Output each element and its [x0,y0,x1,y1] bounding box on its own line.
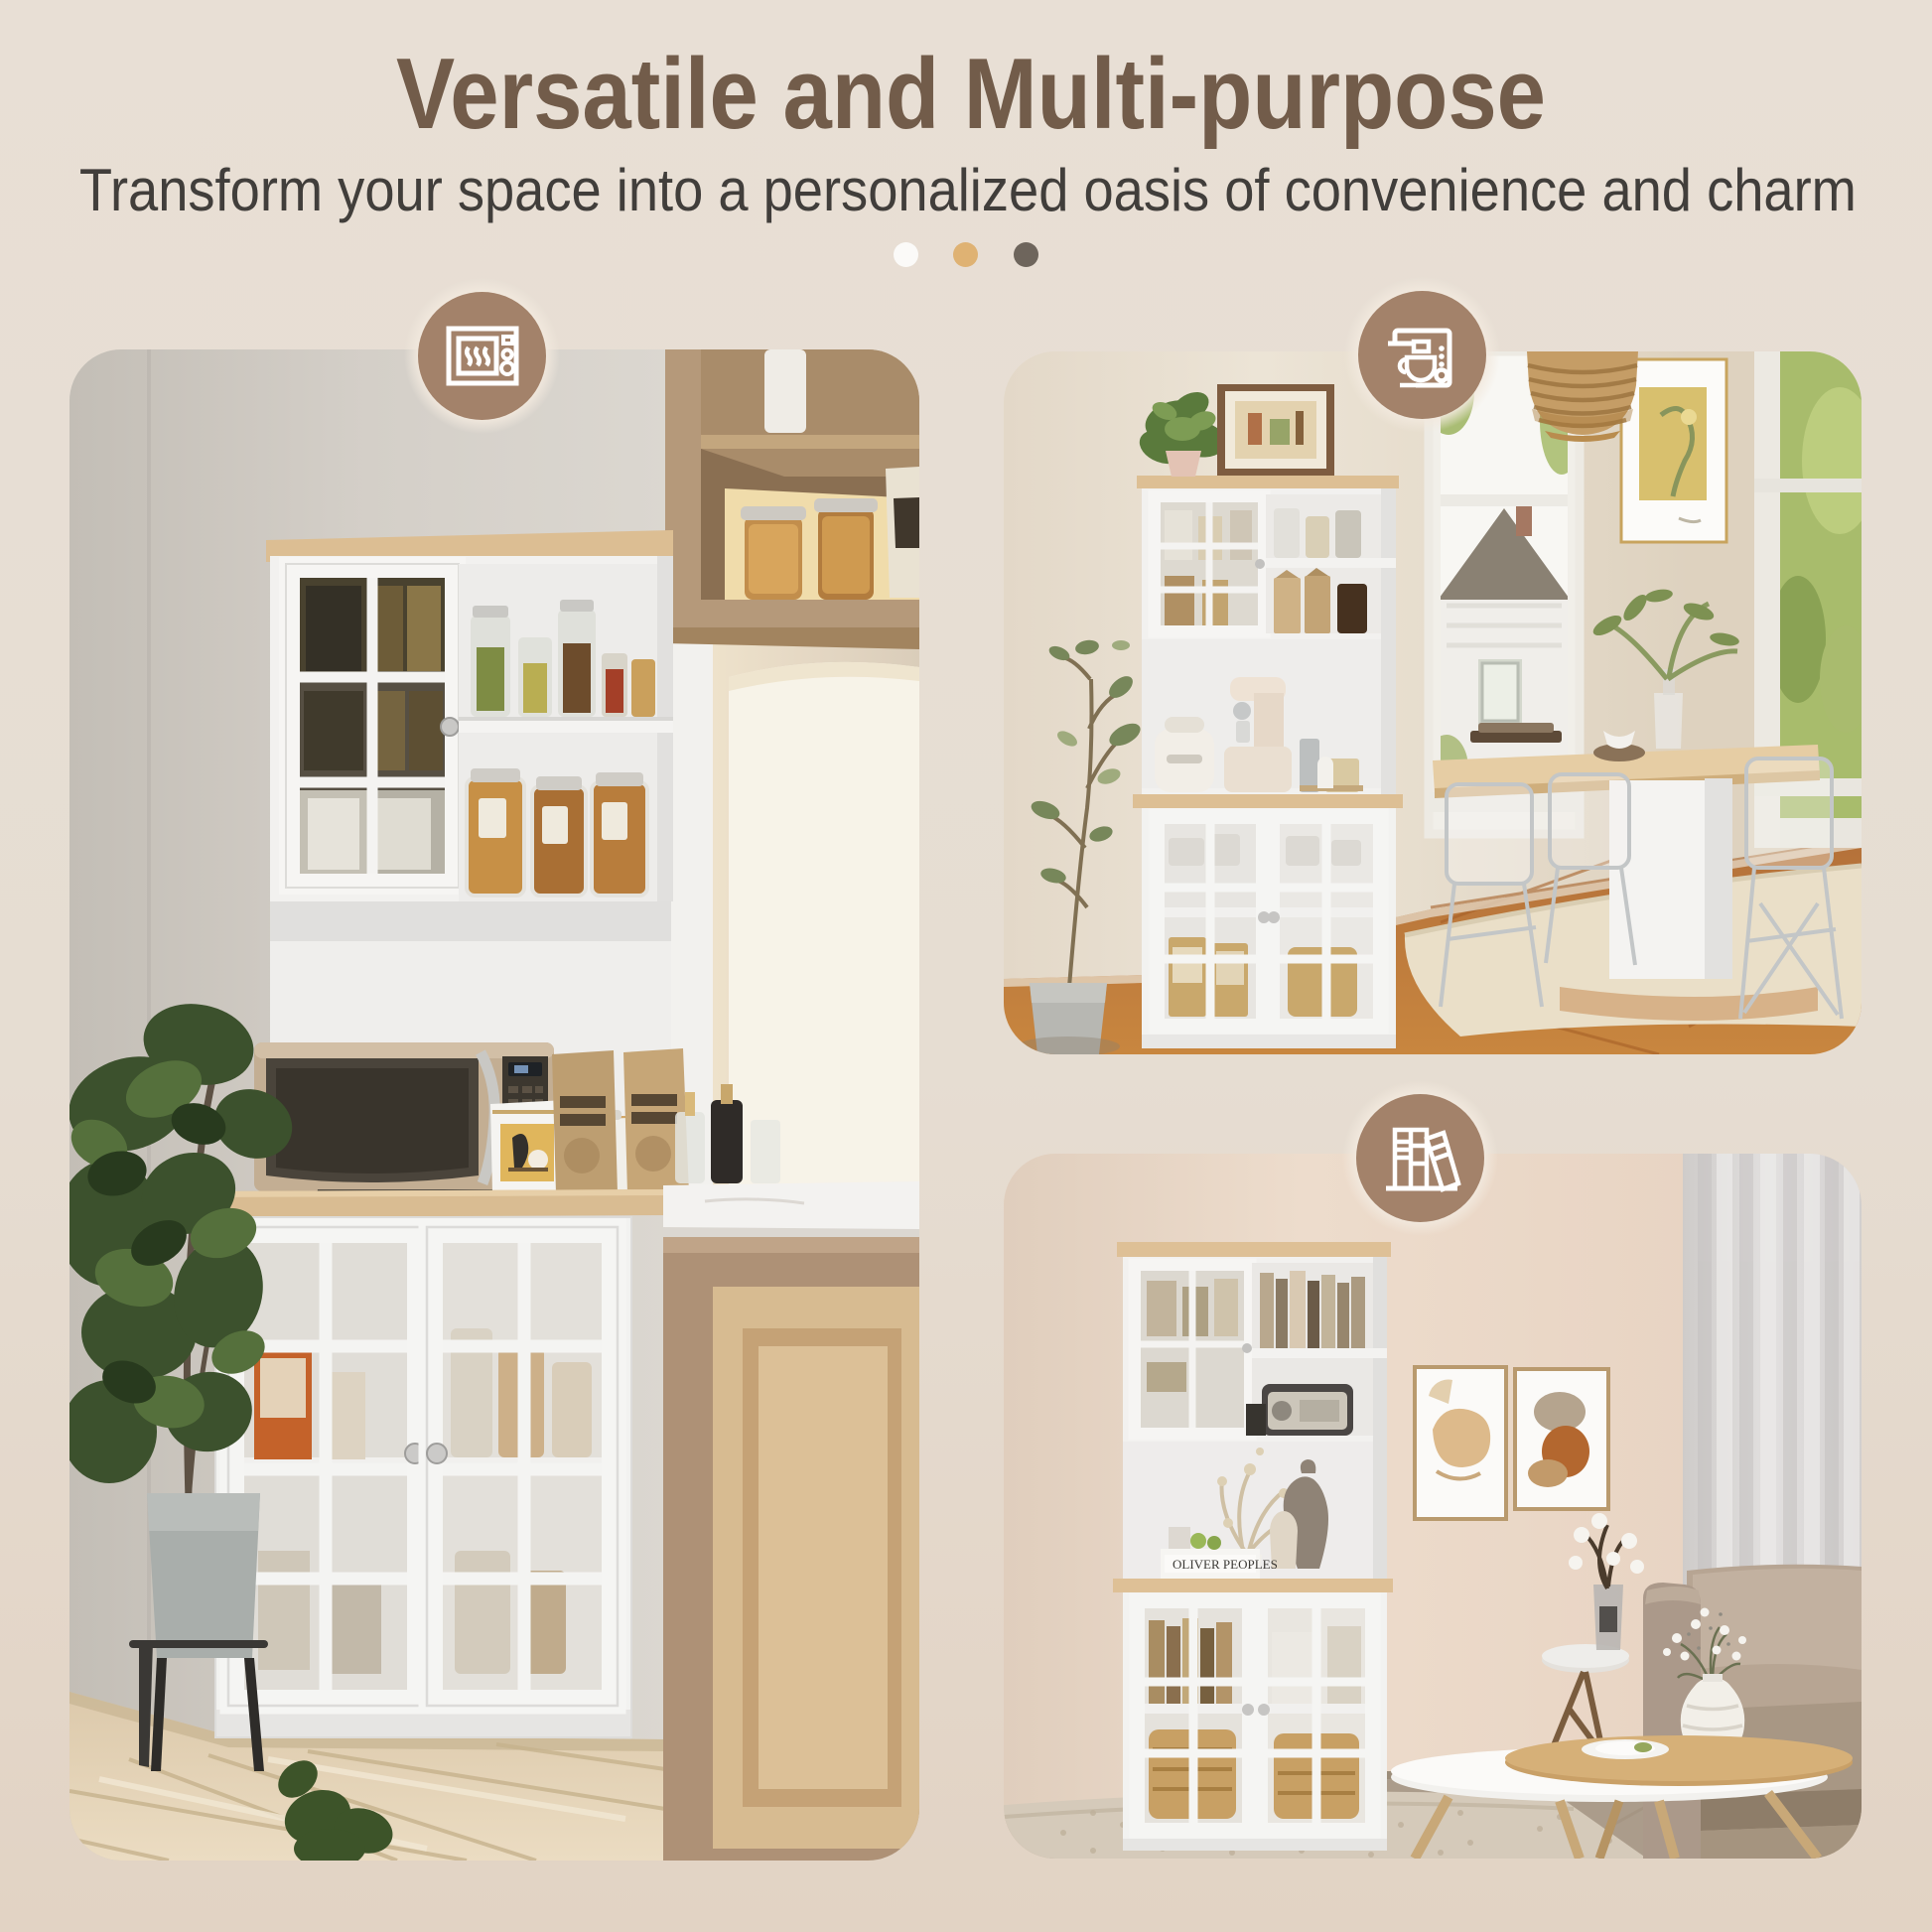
svg-text:OLIVER PEOPLES: OLIVER PEOPLES [1173,1557,1278,1572]
